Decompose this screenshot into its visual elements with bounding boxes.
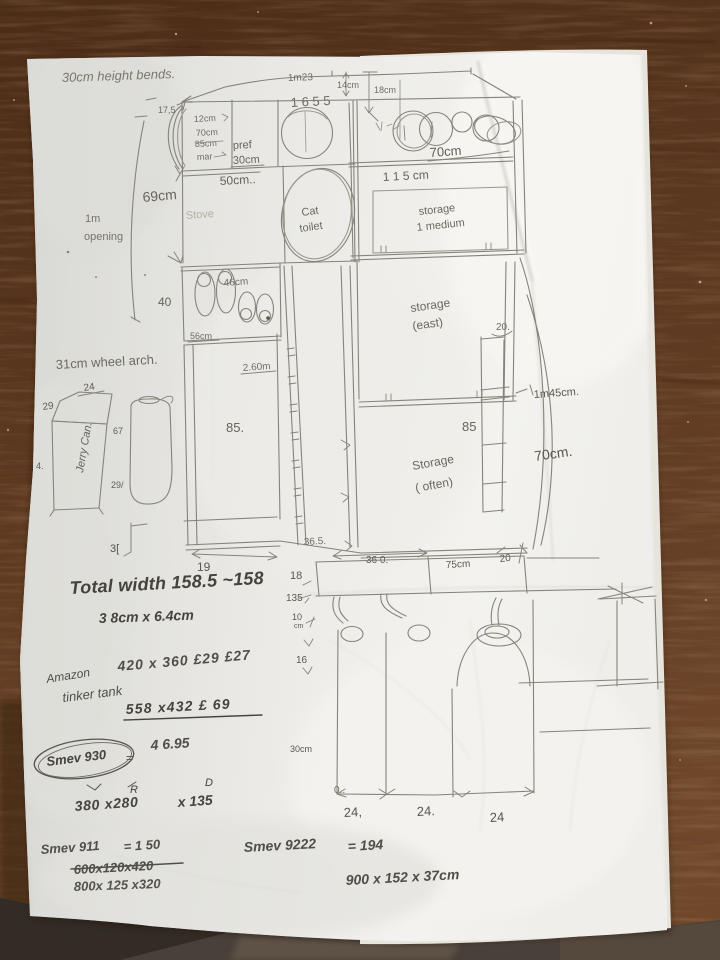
svg-text:x 135: x 135	[176, 792, 213, 810]
svg-text:opening: opening	[84, 231, 123, 243]
svg-text:40: 40	[158, 295, 172, 309]
svg-text:29/: 29/	[111, 480, 124, 490]
svg-text:30cm: 30cm	[233, 154, 260, 167]
svg-text:1m23: 1m23	[288, 72, 314, 84]
svg-text:14cm: 14cm	[337, 80, 359, 90]
svg-text:16: 16	[296, 655, 308, 666]
svg-text:10: 10	[292, 612, 302, 622]
svg-text:1 1 5 cm: 1 1 5 cm	[382, 168, 429, 184]
svg-text:30cm: 30cm	[290, 744, 312, 754]
svg-text:70cm: 70cm	[429, 143, 462, 160]
svg-text:18: 18	[290, 570, 302, 582]
svg-text:17,5: 17,5	[158, 105, 176, 115]
svg-text:20.: 20.	[496, 322, 510, 333]
svg-text:Cat: Cat	[301, 205, 320, 219]
svg-text:85.: 85.	[226, 420, 244, 435]
svg-text:=: =	[126, 751, 133, 765]
svg-text:75cm: 75cm	[446, 559, 471, 571]
svg-text:3[: 3[	[110, 543, 119, 555]
svg-text:0..: 0..	[334, 785, 345, 796]
svg-text:800x 125 x320: 800x 125 x320	[74, 876, 162, 894]
svg-text:cm: cm	[294, 623, 304, 630]
svg-text:= 1 50: = 1 50	[123, 836, 161, 854]
svg-text:D: D	[205, 777, 213, 789]
svg-text:12cm: 12cm	[194, 113, 217, 124]
svg-text:24: 24	[489, 809, 504, 825]
svg-text:Stove: Stove	[185, 208, 214, 222]
svg-text:67: 67	[113, 426, 123, 436]
svg-text:69cm: 69cm	[142, 186, 177, 205]
svg-text:mar: mar	[197, 151, 213, 162]
svg-text:56cm: 56cm	[190, 331, 212, 341]
svg-text:85: 85	[462, 419, 476, 434]
svg-text:3 8cm x 6.4cm: 3 8cm x 6.4cm	[99, 607, 194, 626]
svg-text:20: 20	[499, 553, 512, 565]
svg-text:29: 29	[42, 400, 55, 413]
svg-text:4.: 4.	[36, 461, 44, 471]
svg-text:70cm: 70cm	[196, 127, 219, 138]
svg-text:36.5.: 36.5.	[304, 536, 327, 548]
svg-text:1m: 1m	[85, 213, 100, 225]
svg-text:24,: 24,	[343, 804, 362, 820]
svg-text:24: 24	[83, 381, 96, 394]
svg-text:46cm: 46cm	[223, 276, 248, 289]
svg-text:4 6.95: 4 6.95	[149, 734, 190, 753]
svg-text:85cm: 85cm	[195, 138, 218, 149]
svg-text:50cm..: 50cm..	[219, 172, 256, 188]
svg-text:= 194: = 194	[347, 836, 383, 854]
svg-text:pref: pref	[233, 139, 253, 152]
svg-text:18cm: 18cm	[374, 85, 396, 95]
svg-text:24.: 24.	[416, 803, 435, 819]
